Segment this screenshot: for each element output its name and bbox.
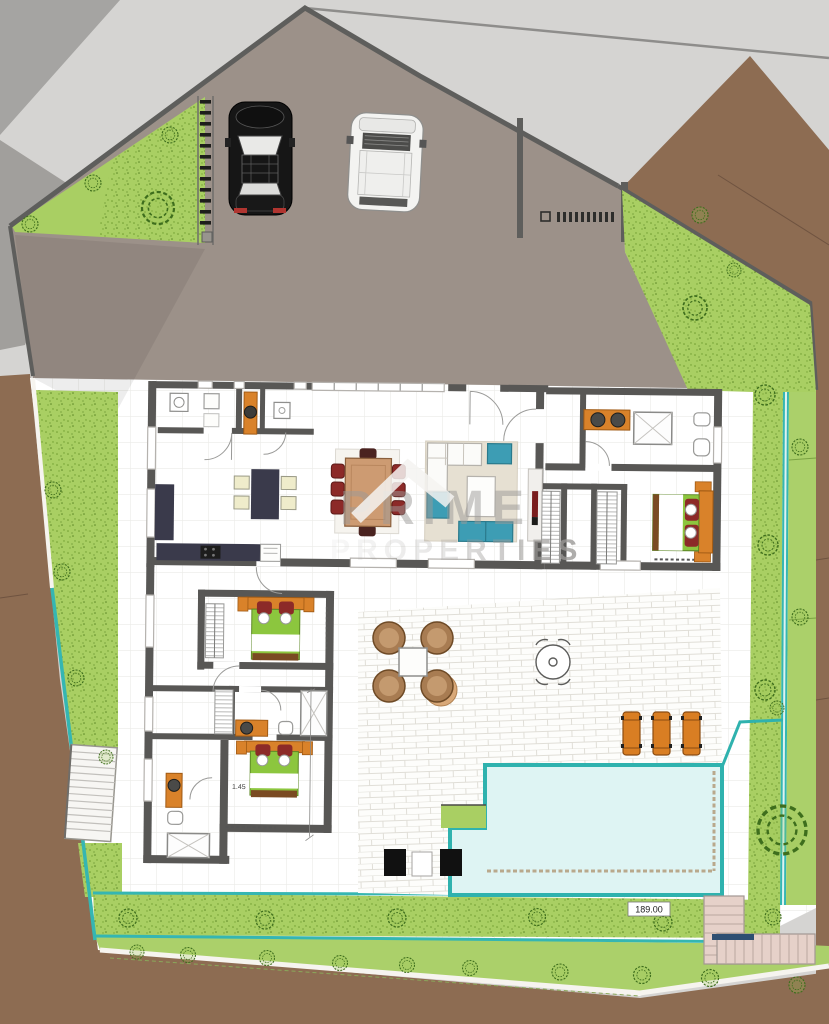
cooktop (200, 546, 220, 559)
fireplace (532, 491, 538, 517)
white-suv-car (343, 112, 428, 213)
fridge-column (155, 484, 175, 540)
watermark-line2: PROPERTIES (330, 534, 583, 567)
bed-foot (252, 653, 298, 660)
bed-foot (251, 790, 297, 797)
toilet (694, 413, 710, 426)
duvet (250, 773, 298, 789)
taillight (234, 208, 247, 213)
laundry-shelf (204, 414, 219, 427)
floor-plan-canvas: 1.45 189.00 PRIME PROPERTIES (0, 0, 829, 1024)
dimension-label: 1.45 (232, 784, 246, 791)
round-basin (244, 406, 256, 418)
washing-machine (170, 393, 188, 411)
outdoor-fire-pit-set (384, 849, 462, 876)
kitchen-island (251, 469, 280, 519)
grass-patch (441, 805, 486, 828)
wc-sink (274, 402, 290, 418)
sink-basin (591, 413, 605, 427)
sink-basin (611, 413, 625, 427)
toilet (168, 811, 183, 824)
garden-belt-bottom (93, 893, 780, 938)
swimming-pool (450, 765, 722, 895)
bed-foot (653, 494, 660, 550)
dryer (204, 394, 219, 409)
taillight (273, 208, 286, 213)
sink-basin (241, 722, 253, 734)
duvet (251, 634, 299, 652)
terrace-pool (358, 588, 783, 895)
bedroom-1 (205, 597, 314, 661)
hall-wardrobe (215, 690, 233, 734)
svg-text:189.00: 189.00 (635, 905, 663, 915)
garden-strip-left-2 (66, 705, 118, 748)
duvet (659, 494, 684, 550)
floor-plan-drawing: 1.45 189.00 PRIME PROPERTIES (0, 0, 829, 1024)
outdoor-side-table (399, 648, 427, 676)
headboard (699, 491, 714, 553)
stair-edge-strip (712, 934, 754, 940)
black-sedan-car (225, 102, 295, 215)
toilet (279, 721, 293, 734)
headboard (246, 597, 306, 610)
pool-area-label: 189.00 (628, 902, 670, 916)
bidet (694, 439, 710, 456)
courtyard-wall (517, 118, 523, 238)
sun-loungers (621, 712, 702, 755)
sink-basin (168, 779, 180, 791)
teal-armchair (487, 444, 511, 464)
